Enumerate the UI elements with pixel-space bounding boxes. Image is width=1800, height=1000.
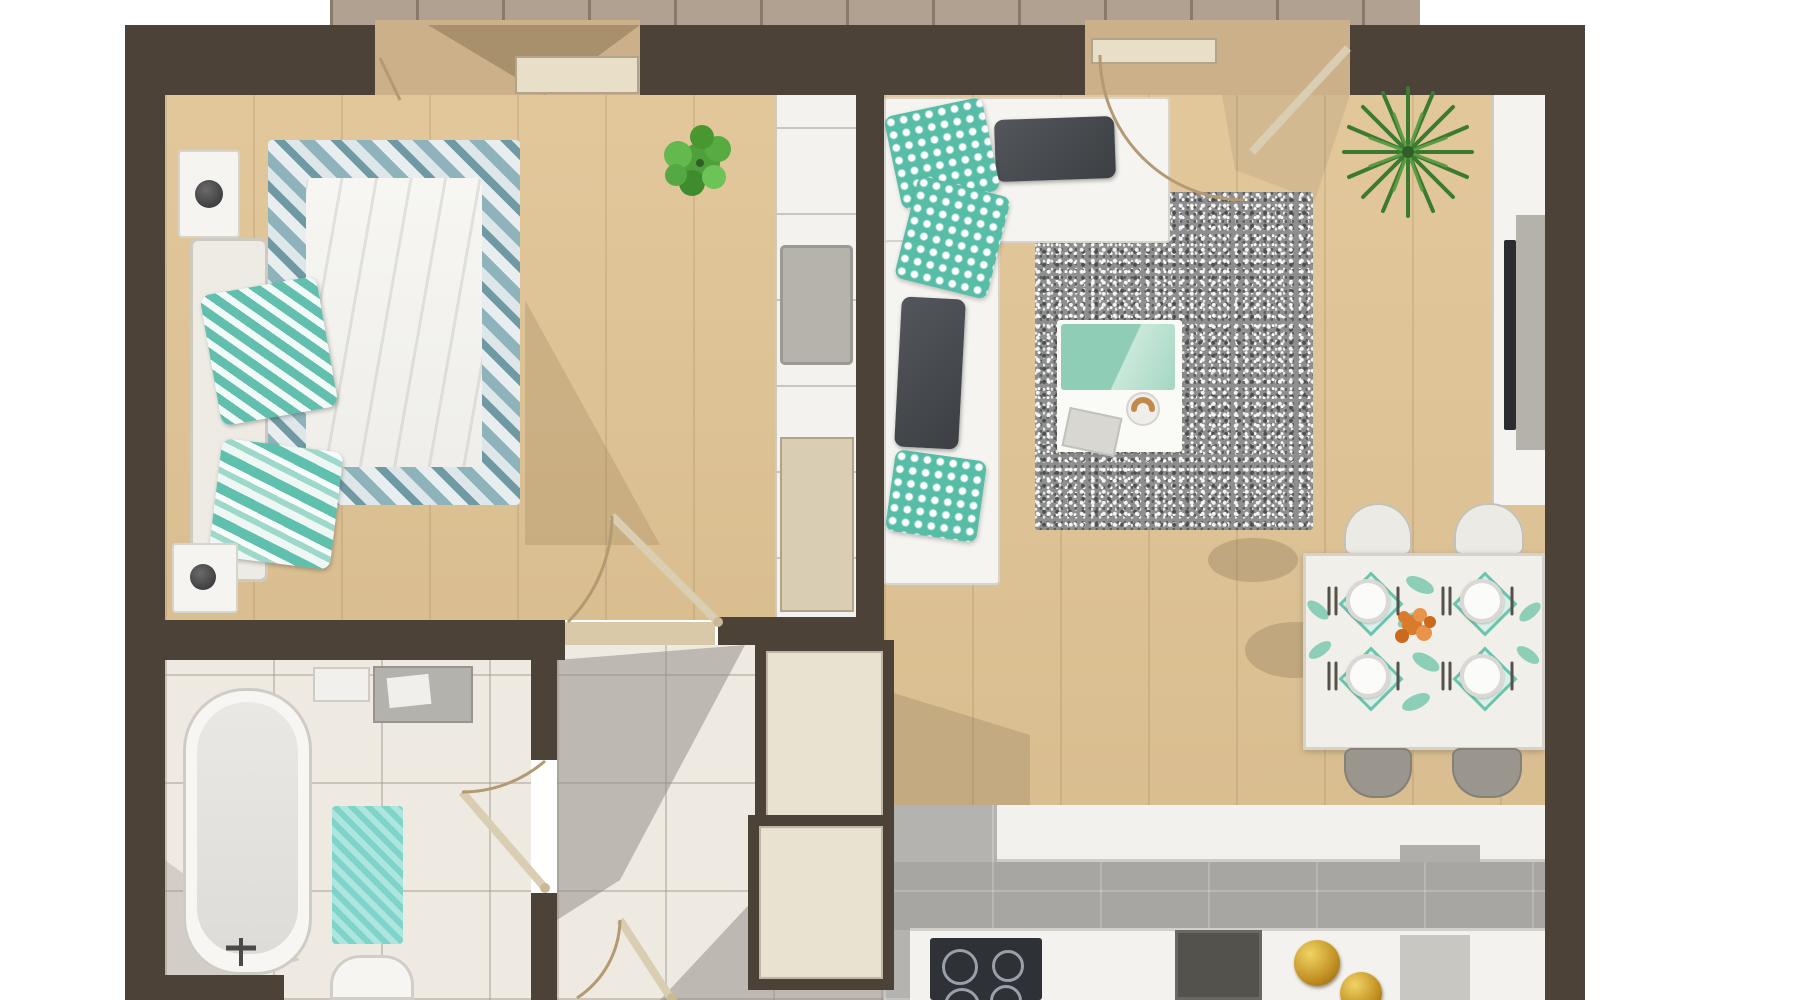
- balcony-floor-left: [375, 20, 640, 96]
- bed-pillow-1: [199, 276, 338, 426]
- wall-bottom-left-stub: [147, 975, 284, 1000]
- wall-partition-living: [856, 95, 884, 645]
- wall-top-bedroom: [125, 25, 375, 95]
- nightstand-bottom: [172, 543, 238, 613]
- plate-2: [1460, 579, 1504, 623]
- cooktop: [930, 938, 1042, 1000]
- gold-sphere-1: [1294, 940, 1340, 986]
- coffee-table-blanket: [1061, 324, 1175, 390]
- wall-left: [125, 25, 165, 1000]
- bath-mat: [332, 806, 403, 944]
- lamp-bottom: [190, 564, 216, 590]
- burner-4: [990, 985, 1022, 1000]
- bathroom-shelf: [313, 667, 370, 702]
- burner-1: [942, 949, 978, 985]
- bed-duvet: [306, 178, 482, 467]
- bathtub-basin: [197, 702, 298, 954]
- plate-4: [1460, 654, 1504, 698]
- wardrobe-panel: [780, 437, 854, 612]
- wall-right: [1545, 25, 1585, 1000]
- plate-3: [1346, 654, 1390, 698]
- balcony-floor-right: [1085, 20, 1350, 96]
- coffee-table: [1057, 320, 1182, 452]
- hall-closet-lower: [748, 815, 894, 990]
- tv-screen: [1504, 240, 1516, 430]
- hall-closet-upper: [755, 640, 894, 834]
- burner-2: [992, 950, 1024, 982]
- tv-av-unit: [1516, 215, 1546, 450]
- burner-3: [944, 988, 980, 1000]
- plate-1: [1346, 579, 1390, 623]
- dining-table: [1303, 553, 1545, 750]
- wardrobe-seat-cushion: [780, 245, 853, 365]
- sofa-teal-pillow-3: [885, 449, 988, 543]
- peninsula-notch: [1400, 845, 1480, 862]
- bathtub: [183, 688, 312, 975]
- bedroom-door-threshold: [565, 622, 715, 645]
- wall-bathroom-east-upper: [531, 640, 557, 760]
- lamp-top: [195, 180, 223, 208]
- toilet: [330, 955, 414, 1000]
- wall-bathroom-east-lower: [531, 893, 557, 1000]
- kitchen-sink: [1175, 930, 1262, 1000]
- wall-bathroom-north: [125, 620, 565, 660]
- floor-plan: [0, 0, 1800, 1000]
- sofa-dark-pillow-top: [994, 116, 1116, 182]
- wall-top-living: [640, 25, 1085, 95]
- wall-bedroom-door-stub: [718, 617, 857, 645]
- nightstand-top: [178, 150, 240, 238]
- bathroom-vanity: [373, 666, 473, 723]
- kitchen-appliance: [1400, 935, 1470, 1000]
- dining-chair-bottom-right: [1452, 748, 1522, 798]
- dining-chair-bottom-left: [1344, 748, 1412, 798]
- vanity-towel: [387, 674, 432, 708]
- sofa-dark-pillow-side: [894, 296, 966, 449]
- coffee-table-book: [1061, 407, 1122, 457]
